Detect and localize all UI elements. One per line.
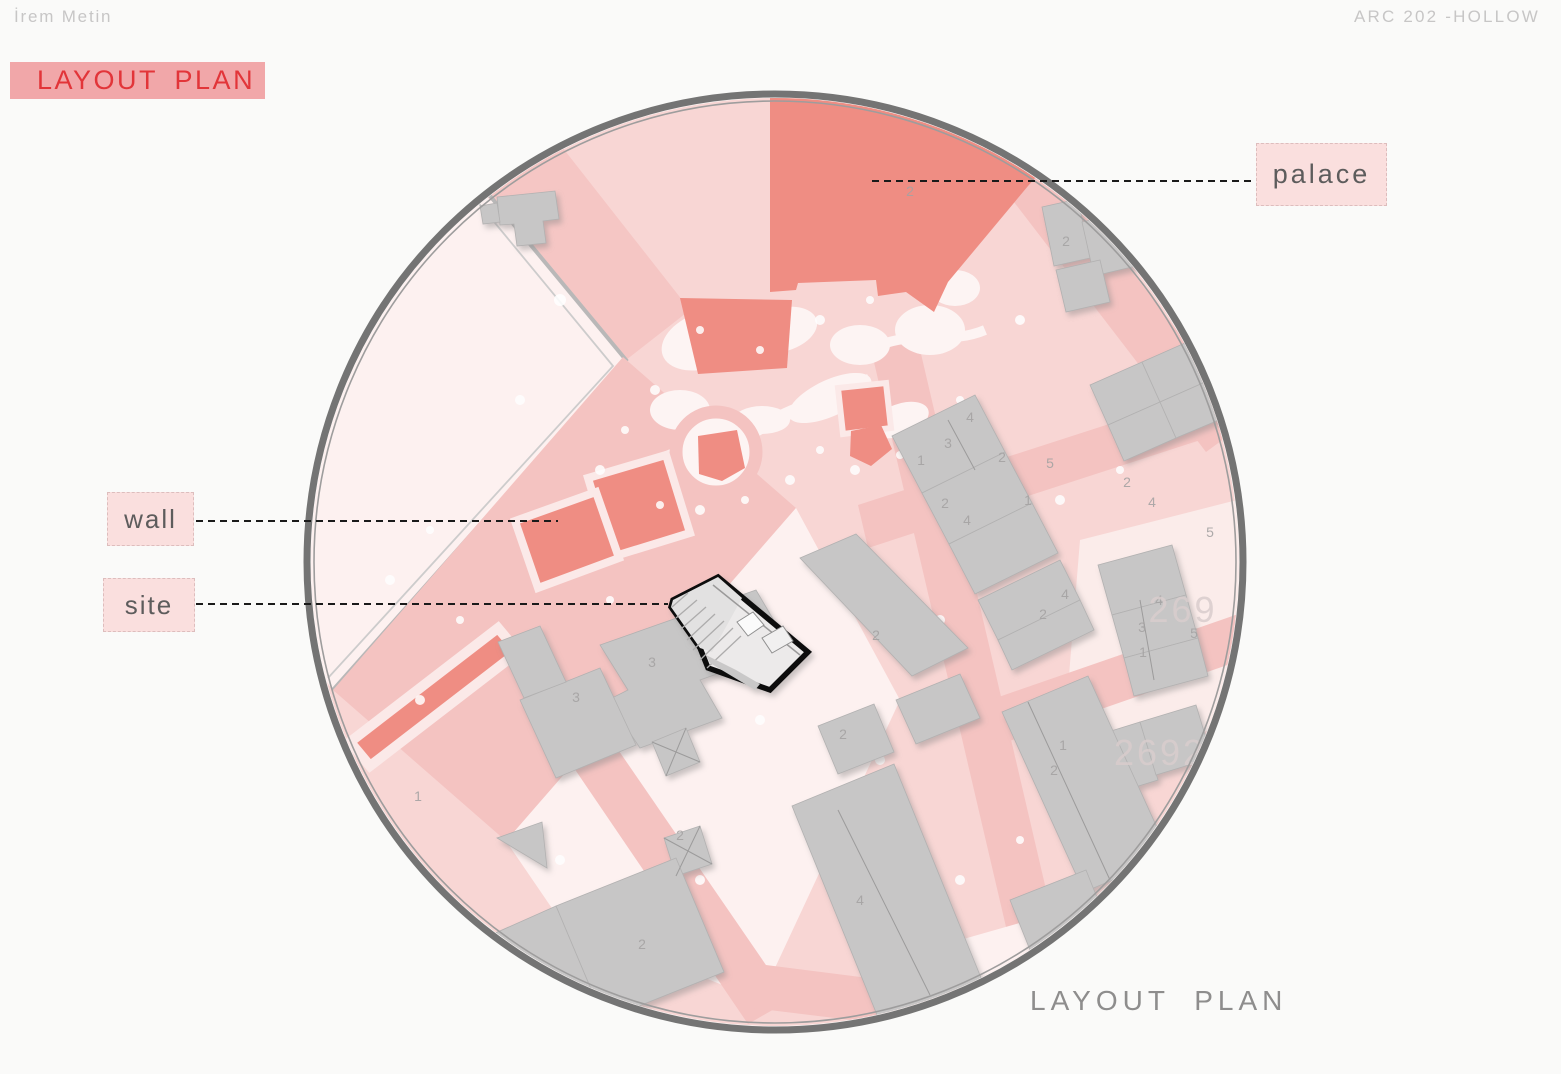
parcel-number: 4 [963,512,971,528]
map-shape [515,395,525,405]
parcel-number: 2 [872,627,880,643]
block-id: 269 [1148,589,1217,630]
map-shape [756,346,764,354]
garden-pavilion [838,383,891,434]
parcel-number: 1 [1059,737,1067,753]
course-code: ARC 202 -HOLLOW [1354,7,1540,27]
map-shape [650,385,660,395]
parcel-number: 2 [1039,606,1047,622]
map-shape [555,855,565,865]
map-shape [815,315,825,325]
parcel-number: 2 [906,183,914,199]
map-shape [554,294,566,306]
parcel-number: 2 [676,827,684,843]
map-shape [415,695,425,705]
map-shape [1016,836,1024,844]
parcel-number: 2 [839,726,847,742]
map-shape [695,505,705,515]
map-shape [741,496,749,504]
parcel-number: 1 [1024,492,1032,508]
map-shape [1116,466,1124,474]
callout-site: site [103,578,195,632]
map-shape [385,575,395,585]
parcel-number: 3 [944,435,952,451]
parcel-number: 2 [638,936,646,952]
author-name: İrem Metin [14,7,112,27]
map-shape [955,875,965,885]
map-shape [656,501,664,509]
parcel-number: 3 [648,654,656,670]
parcel-number: 5 [1046,455,1054,471]
parcel-number: 4 [856,892,864,908]
map-shape [850,465,860,475]
map-shape [1015,315,1025,325]
map-shape [1055,495,1065,505]
map-shape [866,296,874,304]
presentation-board: 213422412454243513322122412522692692 İre… [0,0,1561,1074]
map-shape [621,426,629,434]
map-shape [595,465,605,475]
map-shape [456,616,464,624]
parcel-number: 5 [1206,524,1214,540]
map-shape [696,326,704,334]
map-shape [426,526,434,534]
parcel-number: 2 [1123,474,1131,490]
parcel-number: 3 [572,689,580,705]
parcel-number: 2 [1050,762,1058,778]
garden-path [895,305,965,355]
parcel-number: 3 [1138,619,1146,635]
drawing-caption: LAYOUT PLAN [1030,985,1287,1017]
parcel-number: 4 [1148,494,1156,510]
title-badge: LAYOUT PLAN [10,62,265,99]
building-block [1056,260,1110,312]
parcel-number: 2 [941,495,949,511]
parcel-number: 1 [917,452,925,468]
parcel-number: 2 [998,449,1006,465]
callout-palace: palace [1256,143,1387,206]
map-shape [606,596,614,604]
map-shape [695,875,705,885]
parcel-number: 4 [966,409,974,425]
map-shape [816,446,824,454]
parcel-number: 1 [1139,644,1147,660]
map-shape [785,475,795,485]
parcel-number: 4 [1061,586,1069,602]
palace-mass-lower [680,298,792,374]
parcel-number: 1 [414,788,422,804]
parcel-number: 2 [1062,233,1070,249]
callout-wall: wall [107,492,194,546]
map-shape [755,715,765,725]
